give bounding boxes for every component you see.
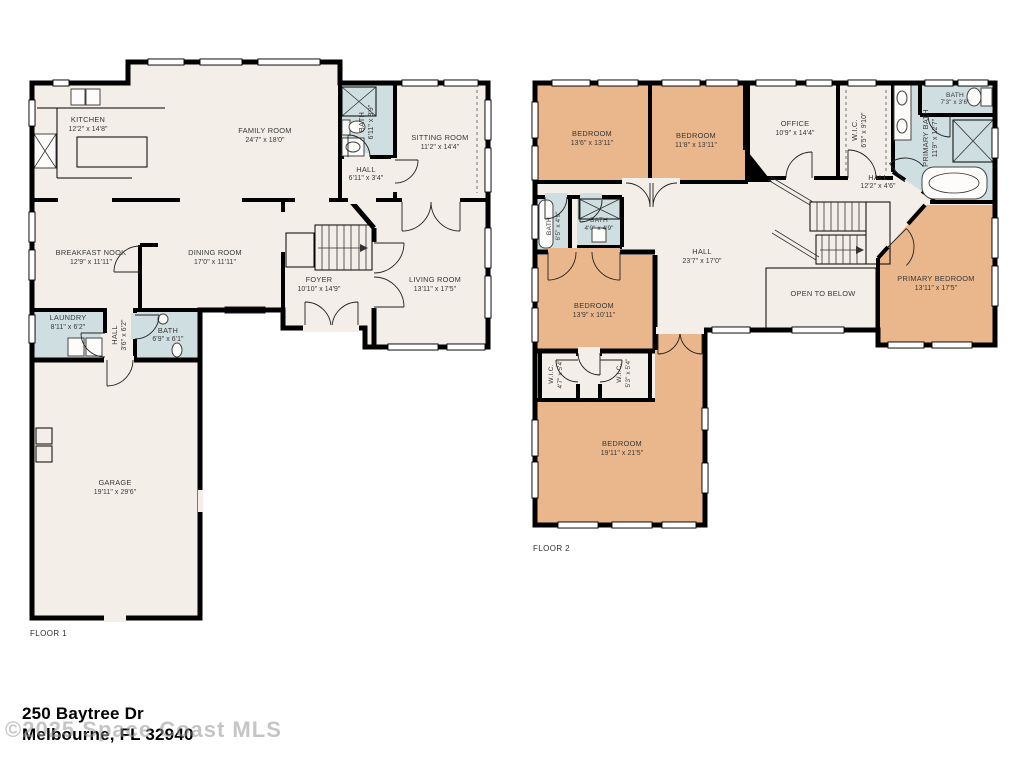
svg-text:7'3" x 3'6": 7'3" x 3'6" [940, 99, 969, 106]
svg-text:13'11" x 17'5": 13'11" x 17'5" [414, 286, 457, 293]
svg-text:PRIMARY BEDROOM: PRIMARY BEDROOM [897, 274, 974, 283]
floor2-plan: BEDROOM 13'6" x 13'11" BEDROOM 11'8" x 1… [532, 80, 998, 553]
svg-text:HALL: HALL [110, 325, 119, 345]
svg-text:FOYER: FOYER [306, 275, 333, 284]
svg-text:6'11" x 8'9": 6'11" x 8'9" [368, 104, 375, 139]
svg-text:LAUNDRY: LAUNDRY [50, 313, 87, 322]
svg-text:BATH: BATH [946, 92, 964, 99]
svg-text:5'3" x 5'4": 5'3" x 5'4" [625, 358, 632, 387]
svg-text:8'11" x 6'2": 8'11" x 6'2" [51, 324, 86, 331]
floor1-plan: KITCHEN 12'2" x 14'8" FAMILY ROOM 24'7" … [29, 59, 491, 638]
svg-text:23'7" x 17'0": 23'7" x 17'0" [682, 258, 722, 265]
svg-text:BATH: BATH [357, 112, 366, 132]
svg-text:19'11" x 29'6": 19'11" x 29'6" [94, 489, 137, 496]
svg-text:W.I.C.: W.I.C. [616, 363, 623, 382]
svg-text:FAMILY ROOM: FAMILY ROOM [238, 126, 291, 135]
svg-text:11'9" x 12'7": 11'9" x 12'7" [932, 118, 939, 157]
svg-text:10'10" x 14'9": 10'10" x 14'9" [297, 286, 340, 293]
svg-text:DINING ROOM: DINING ROOM [188, 248, 242, 257]
svg-text:BATH: BATH [590, 217, 608, 224]
svg-text:10'9" x 14'4": 10'9" x 14'4" [775, 130, 815, 137]
svg-text:13'9" x 10'11": 13'9" x 10'11" [573, 312, 616, 319]
svg-text:BATH: BATH [546, 217, 553, 235]
svg-text:OFFICE: OFFICE [781, 119, 810, 128]
svg-text:SITTING ROOM: SITTING ROOM [411, 133, 468, 142]
svg-text:W.I.C.: W.I.C. [850, 119, 859, 141]
svg-text:6'5" x 4'9": 6'5" x 4'9" [555, 211, 562, 240]
svg-text:W.I.C.: W.I.C. [548, 364, 555, 383]
svg-text:12'9" x 11'11": 12'9" x 11'11" [70, 259, 112, 266]
svg-text:HALL: HALL [356, 165, 376, 174]
svg-text:11'2" x 14'4": 11'2" x 14'4" [421, 144, 460, 151]
svg-text:3'6" x 6'2": 3'6" x 6'2" [121, 319, 128, 351]
svg-text:BREAKFAST NOOK: BREAKFAST NOOK [56, 248, 127, 257]
svg-text:HALL: HALL [868, 173, 888, 182]
svg-text:12'2" x 14'8": 12'2" x 14'8" [68, 126, 108, 133]
svg-text:BEDROOM: BEDROOM [574, 301, 614, 310]
svg-text:17'0" x 11'11": 17'0" x 11'11" [194, 259, 236, 266]
svg-text:PRIMARY BATH: PRIMARY BATH [921, 109, 930, 167]
svg-text:4'0" x 4'9": 4'0" x 4'9" [584, 225, 613, 232]
svg-text:12'2" x 4'6": 12'2" x 4'6" [860, 183, 896, 190]
svg-text:BEDROOM: BEDROOM [572, 129, 612, 138]
mls-watermark: ©2025 Space Coast MLS [5, 717, 282, 743]
svg-text:19'11" x 21'5": 19'11" x 21'5" [601, 450, 644, 457]
label-open-to-below: OPEN TO BELOW [791, 289, 856, 298]
svg-text:GARAGE: GARAGE [98, 478, 131, 487]
svg-text:24'7" x 18'0": 24'7" x 18'0" [245, 137, 285, 144]
svg-text:6'9" x 6'1": 6'9" x 6'1" [152, 336, 184, 343]
svg-text:HALL: HALL [692, 247, 712, 256]
svg-text:6'5" x 9'10": 6'5" x 9'10" [861, 112, 868, 148]
svg-text:6'11" x 3'4": 6'11" x 3'4" [349, 175, 384, 182]
svg-text:4'7" x 5'4": 4'7" x 5'4" [557, 359, 564, 388]
svg-text:BEDROOM: BEDROOM [602, 439, 642, 448]
svg-text:13'6" x 13'11": 13'6" x 13'11" [571, 140, 614, 147]
floor1-caption: FLOOR 1 [30, 629, 67, 638]
svg-text:LIVING ROOM: LIVING ROOM [409, 275, 461, 284]
svg-text:BATH: BATH [158, 326, 178, 335]
svg-text:BEDROOM: BEDROOM [676, 131, 716, 140]
floor-plan-page: KITCHEN 12'2" x 14'8" FAMILY ROOM 24'7" … [0, 0, 1024, 768]
floor2-caption: FLOOR 2 [533, 544, 570, 553]
svg-text:11'8" x 13'11": 11'8" x 13'11" [675, 142, 717, 149]
floor-plan-image: KITCHEN 12'2" x 14'8" FAMILY ROOM 24'7" … [0, 0, 1024, 768]
svg-text:13'11" x 17'5": 13'11" x 17'5" [915, 285, 958, 292]
svg-text:KITCHEN: KITCHEN [71, 115, 105, 124]
